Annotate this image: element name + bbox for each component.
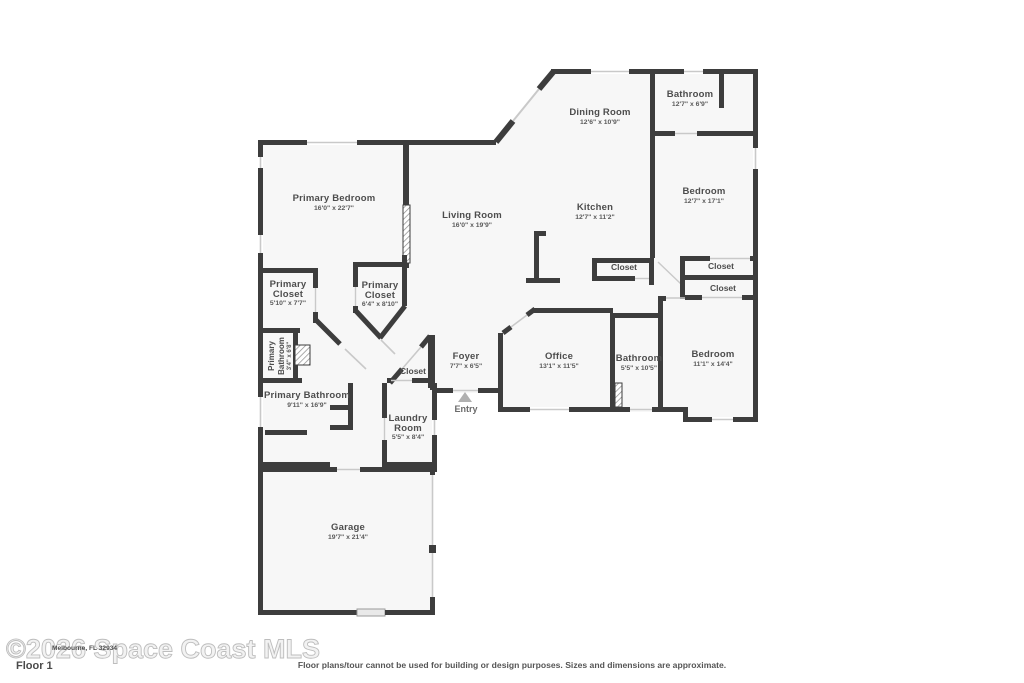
room-dims-foyer: 7'7" x 6'5" — [450, 363, 482, 370]
room-dims-primary-closet-right: 6'4" x 8'10" — [362, 301, 398, 308]
room-dims-bathroom-mid: 5'5" x 10'5" — [621, 365, 657, 372]
room-label-bathroom-mid: Bathroom — [616, 353, 662, 364]
room-label-living: Living Room — [442, 210, 502, 221]
disclaimer-text: Floor plans/tour cannot be used for buil… — [298, 660, 726, 670]
floor-label: Floor 1 — [16, 660, 53, 672]
room-label-primary-bedroom: Primary Bedroom — [293, 193, 376, 204]
room-label-dining: Dining Room — [569, 107, 630, 118]
room-dims-bathroom-top: 12'7" x 6'9" — [672, 101, 708, 108]
room-label-closet-right-1: Closet — [708, 261, 734, 271]
address-overlay: Melbourne, FL 32934 — [52, 645, 117, 652]
room-dims-bedroom-top: 12'7" x 17'1" — [684, 198, 724, 205]
room-dims-bedroom-right: 11'1" x 14'4" — [693, 361, 733, 368]
floor-plan-page: Bathroom 12'7" x 6'9" Dining Room 12'6" … — [0, 0, 1024, 683]
room-dims-primary-bath-small: 3'4" x 6'8" — [287, 342, 293, 371]
room-dims-primary-closet-left: 5'10" x 7'7" — [270, 300, 306, 307]
entry-arrow-icon — [458, 392, 472, 402]
room-label-kitchen: Kitchen — [577, 202, 613, 213]
room-label-bedroom-right: Bedroom — [691, 349, 734, 360]
room-dims-laundry: 5'5" x 8'4" — [392, 434, 424, 441]
room-label-bathroom-top: Bathroom — [667, 89, 713, 100]
room-label-bedroom-top: Bedroom — [682, 186, 725, 197]
room-label-primary-bath-small-2: Bathroom — [277, 337, 286, 375]
room-label-primary-closet-left-2: Closet — [273, 289, 304, 300]
room-label-laundry-2: Room — [394, 423, 422, 434]
floor-plan: Bathroom 12'7" x 6'9" Dining Room 12'6" … — [0, 0, 1024, 683]
room-label-primary-bathroom: Primary Bathroom — [264, 390, 350, 401]
entry-label: Entry — [454, 404, 477, 414]
room-dims-primary-bathroom: 9'11" x 16'9" — [287, 402, 327, 409]
room-dims-living: 16'0" x 19'9" — [452, 222, 492, 229]
room-label-primary-bath-small-1: Primary — [267, 341, 276, 371]
room-dims-office: 13'1" x 11'5" — [539, 363, 579, 370]
room-label-closet-diагonal: Closet — [400, 366, 426, 376]
room-label-foyer: Foyer — [453, 351, 480, 362]
room-label-closet-kitchen: Closet — [611, 262, 637, 272]
room-label-closet-right-2: Closet — [710, 283, 736, 293]
room-dims-primary-bedroom: 16'0" x 22'7" — [314, 205, 354, 212]
room-dims-garage: 19'7" x 21'4" — [328, 534, 368, 541]
room-label-office: Office — [545, 351, 573, 362]
room-dims-kitchen: 12'7" x 11'2" — [575, 214, 615, 221]
room-dims-dining: 12'6" x 10'9" — [580, 119, 620, 126]
room-label-garage: Garage — [331, 522, 365, 533]
room-label-primary-closet-right-2: Closet — [365, 290, 396, 301]
